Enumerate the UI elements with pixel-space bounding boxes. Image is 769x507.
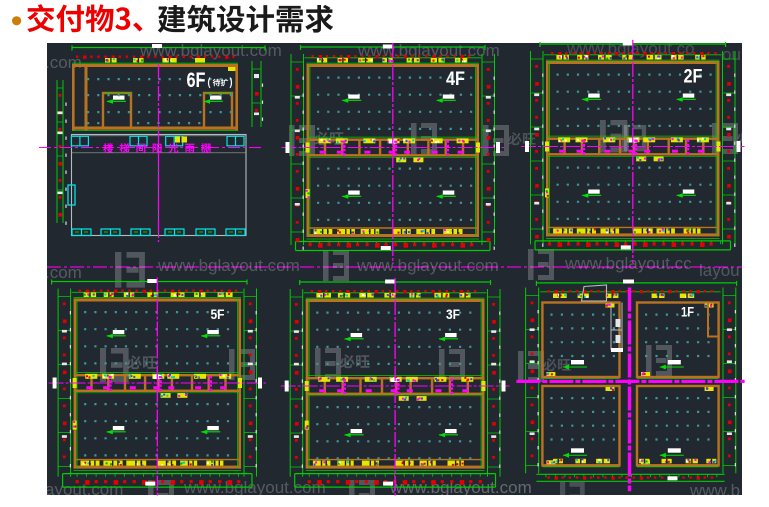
svg-text:www.bglayout.cc: www.bglayout.cc — [564, 254, 692, 273]
svg-text:1F: 1F — [681, 304, 694, 320]
svg-text:layou: layou — [699, 261, 740, 280]
svg-text:ayout.com: ayout.com — [45, 480, 123, 499]
svg-text:.com: .com — [45, 263, 82, 282]
svg-text:www.bglayout.com: www.bglayout.com — [139, 41, 282, 60]
svg-text:5F: 5F — [211, 306, 225, 322]
svg-text:www.bglayout.com: www.bglayout.com — [157, 256, 300, 275]
svg-text:4F: 4F — [446, 69, 465, 90]
svg-text:2F: 2F — [684, 67, 703, 88]
svg-text:www.b: www.b — [689, 481, 740, 500]
svg-text:ou: ou — [722, 45, 741, 64]
svg-text:3F: 3F — [446, 306, 460, 322]
svg-text:www.bglayout.com: www.bglayout.com — [356, 256, 499, 275]
svg-text:6F: 6F — [187, 69, 206, 92]
